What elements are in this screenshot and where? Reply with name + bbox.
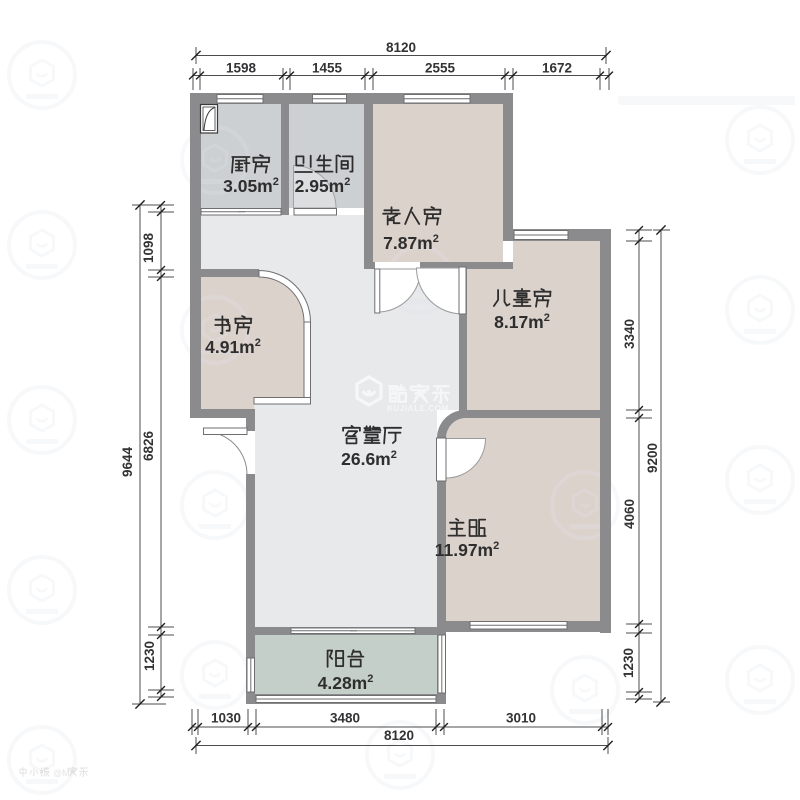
svg-text:@M: @M — [53, 768, 70, 778]
svg-text:3340: 3340 — [622, 319, 637, 349]
svg-text:4.91m2: 4.91m2 — [205, 337, 261, 357]
svg-text:1098: 1098 — [141, 232, 156, 263]
svg-text:9644: 9644 — [120, 446, 135, 477]
svg-text:3010: 3010 — [506, 711, 536, 726]
svg-text:4.28m2: 4.28m2 — [318, 673, 374, 693]
svg-text:11.97m2: 11.97m2 — [435, 540, 500, 560]
svg-text:2555: 2555 — [425, 61, 456, 76]
svg-text:1455: 1455 — [312, 61, 343, 76]
svg-text:1598: 1598 — [226, 61, 257, 76]
svg-text:3480: 3480 — [330, 711, 360, 726]
svg-text:6826: 6826 — [141, 430, 156, 461]
svg-text:8120: 8120 — [384, 728, 414, 743]
svg-text:9200: 9200 — [645, 443, 660, 473]
svg-text:4060: 4060 — [622, 499, 637, 529]
svg-text:26.6m2: 26.6m2 — [341, 449, 397, 469]
svg-text:8120: 8120 — [386, 40, 416, 55]
svg-text:KUJIALE.COM: KUJIALE.COM — [387, 404, 449, 413]
svg-text:1230: 1230 — [142, 641, 157, 671]
svg-text:1030: 1030 — [211, 711, 241, 726]
svg-text:3.05m2: 3.05m2 — [223, 176, 279, 196]
svg-text:7.87m2: 7.87m2 — [383, 233, 439, 253]
svg-text:1672: 1672 — [542, 61, 572, 76]
svg-text:8.17m2: 8.17m2 — [494, 312, 550, 332]
svg-text:2.95m2: 2.95m2 — [295, 176, 351, 196]
svg-text:1230: 1230 — [621, 648, 636, 678]
